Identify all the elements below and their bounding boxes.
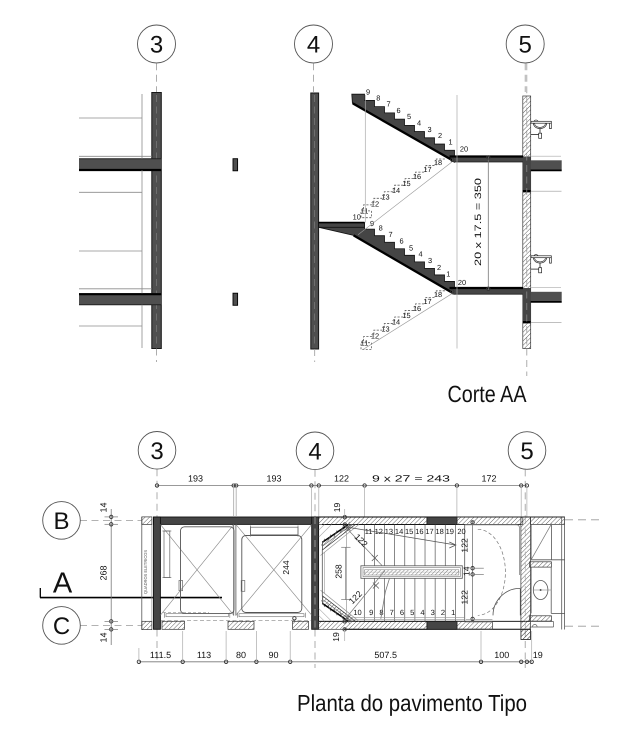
svg-text:122: 122 <box>459 590 469 605</box>
svg-text:C: C <box>53 613 70 640</box>
svg-text:18: 18 <box>434 158 442 167</box>
svg-text:16: 16 <box>413 172 421 181</box>
svg-text:172: 172 <box>481 474 496 484</box>
svg-text:4: 4 <box>308 438 321 465</box>
svg-text:16: 16 <box>413 304 421 313</box>
svg-text:11: 11 <box>361 207 369 216</box>
svg-text:Corte AA: Corte AA <box>448 381 527 407</box>
svg-text:14: 14 <box>98 502 108 512</box>
svg-text:6: 6 <box>400 608 404 617</box>
svg-text:13: 13 <box>381 325 389 334</box>
svg-text:2: 2 <box>441 608 445 617</box>
svg-text:1: 1 <box>449 137 453 146</box>
svg-text:3: 3 <box>150 438 163 465</box>
svg-text:12: 12 <box>371 200 379 209</box>
svg-text:90: 90 <box>268 650 278 660</box>
svg-text:258: 258 <box>333 564 343 579</box>
svg-text:9: 9 <box>369 608 373 617</box>
svg-text:122: 122 <box>459 538 469 553</box>
svg-text:5: 5 <box>410 608 414 617</box>
svg-text:2: 2 <box>437 263 441 272</box>
svg-text:1: 1 <box>446 270 450 279</box>
svg-text:14: 14 <box>392 318 400 327</box>
svg-text:244: 244 <box>281 560 291 574</box>
svg-text:8: 8 <box>379 224 383 233</box>
svg-text:19: 19 <box>331 632 341 642</box>
svg-text:113: 113 <box>197 650 211 660</box>
svg-text:19: 19 <box>533 650 543 660</box>
svg-text:20: 20 <box>458 278 466 287</box>
svg-text:4: 4 <box>307 32 320 59</box>
svg-text:7: 7 <box>386 100 390 109</box>
svg-text:17: 17 <box>425 527 433 536</box>
svg-text:14: 14 <box>98 632 108 642</box>
svg-text:3: 3 <box>427 125 431 134</box>
svg-text:11: 11 <box>365 527 373 536</box>
svg-text:122: 122 <box>334 474 349 484</box>
svg-text:3: 3 <box>431 608 435 617</box>
svg-text:507.5: 507.5 <box>374 650 397 660</box>
svg-text:193: 193 <box>266 474 281 484</box>
svg-text:13: 13 <box>385 527 393 536</box>
svg-text:18: 18 <box>436 527 444 536</box>
svg-text:2: 2 <box>438 131 442 140</box>
svg-text:7: 7 <box>390 608 394 617</box>
svg-text:5: 5 <box>407 112 411 121</box>
svg-text:5: 5 <box>409 243 413 252</box>
svg-text:QUADROS ELETRICOS: QUADROS ELETRICOS <box>143 550 148 594</box>
svg-text:193: 193 <box>188 474 203 484</box>
svg-text:7: 7 <box>388 230 392 239</box>
svg-text:19: 19 <box>332 503 342 513</box>
svg-text:268: 268 <box>98 565 108 580</box>
svg-text:20: 20 <box>457 527 465 536</box>
svg-text:5: 5 <box>520 438 533 465</box>
svg-text:16: 16 <box>415 527 423 536</box>
svg-text:111.5: 111.5 <box>150 650 171 660</box>
svg-text:17: 17 <box>423 165 431 174</box>
svg-text:3: 3 <box>150 32 163 59</box>
svg-text:B: B <box>53 508 69 535</box>
svg-text:12: 12 <box>371 332 379 341</box>
svg-text:6: 6 <box>399 237 403 246</box>
svg-text:20: 20 <box>460 145 468 154</box>
svg-text:9 x 27 = 243: 9 x 27 = 243 <box>372 474 450 484</box>
svg-text:18: 18 <box>434 290 442 299</box>
svg-text:4: 4 <box>417 118 421 127</box>
svg-text:20 x 17.5 = 350: 20 x 17.5 = 350 <box>473 178 483 266</box>
svg-text:1: 1 <box>451 608 455 617</box>
svg-text:80: 80 <box>236 650 246 660</box>
svg-text:3: 3 <box>428 256 432 265</box>
svg-text:15: 15 <box>405 527 413 536</box>
svg-text:A: A <box>53 568 73 600</box>
svg-text:19: 19 <box>446 527 454 536</box>
svg-text:15: 15 <box>402 179 410 188</box>
svg-text:4: 4 <box>418 250 422 259</box>
svg-text:10: 10 <box>353 608 361 617</box>
svg-text:17: 17 <box>423 297 431 306</box>
svg-text:14: 14 <box>392 186 400 195</box>
svg-text:6: 6 <box>396 106 400 115</box>
svg-text:9: 9 <box>366 88 370 97</box>
svg-text:15: 15 <box>402 311 410 320</box>
svg-text:Planta do pavimento Tipo: Planta do pavimento Tipo <box>297 690 527 716</box>
svg-text:13: 13 <box>381 193 389 202</box>
svg-text:4: 4 <box>420 608 424 617</box>
svg-text:100: 100 <box>494 650 509 660</box>
svg-text:8: 8 <box>376 94 380 103</box>
svg-text:11: 11 <box>361 338 369 347</box>
svg-text:5: 5 <box>519 32 532 59</box>
svg-text:14: 14 <box>461 566 471 576</box>
